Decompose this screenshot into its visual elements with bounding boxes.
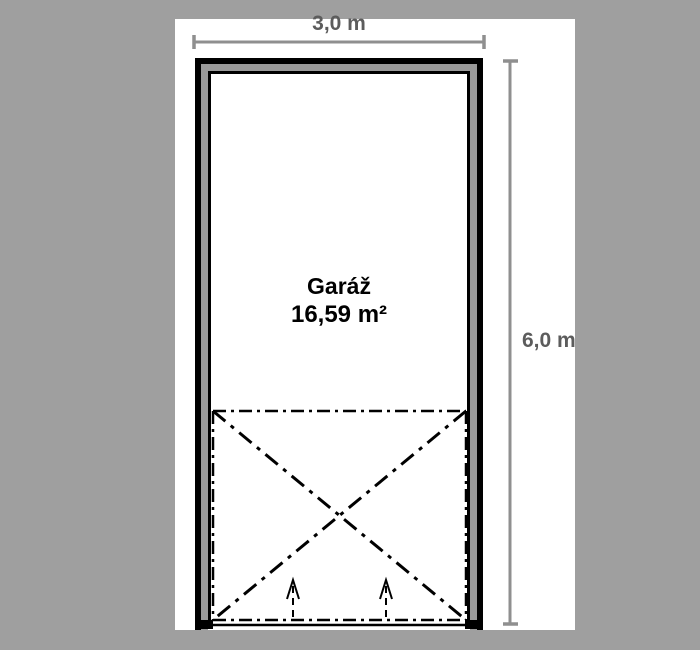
wall-core-fill — [205, 68, 474, 631]
dimension-width-label: 3,0 m — [239, 12, 439, 36]
dimension-height-label: 6,0 m — [522, 329, 576, 353]
floorplan-page: 3,0 m 6,0 m Garáž 16,59 m² — [0, 0, 700, 650]
width-dimension — [194, 35, 484, 49]
room-area-label: 16,59 m² — [224, 300, 454, 329]
room-name-label: Garáž — [224, 272, 454, 300]
garage-door-area-marking — [213, 411, 466, 620]
height-dimension — [503, 61, 518, 624]
entry-arrow-icon — [287, 580, 299, 621]
wall-outer-line — [198, 61, 480, 630]
room-label-block: Garáž 16,59 m² — [224, 272, 454, 329]
wall-inner-line — [210, 73, 469, 629]
entry-arrow-icon — [380, 580, 392, 621]
garage-walls — [195, 61, 483, 630]
